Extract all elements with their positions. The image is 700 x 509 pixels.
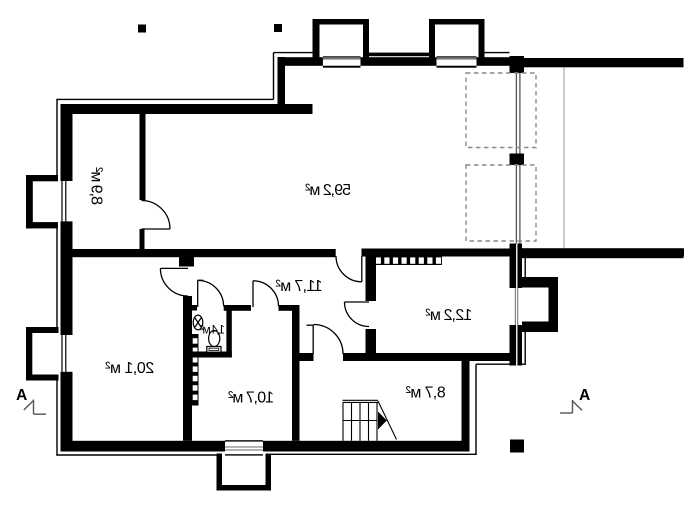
svg-text:59,2 м²: 59,2 м²	[304, 182, 351, 199]
svg-text:A: A	[579, 387, 590, 404]
svg-text:A: A	[16, 387, 27, 404]
svg-text:8,9 м²: 8,9 м²	[88, 166, 105, 205]
svg-text:8,7 м²: 8,7 м²	[405, 385, 446, 402]
svg-text:20,1 м²: 20,1 м²	[105, 360, 155, 377]
svg-text:11,7 м²: 11,7 м²	[275, 278, 323, 295]
svg-text:10,7 м²: 10,7 м²	[227, 389, 274, 406]
svg-text:12,2 м²: 12,2 м²	[425, 307, 473, 324]
svg-text:1,4 м²: 1,4 м²	[200, 323, 225, 337]
